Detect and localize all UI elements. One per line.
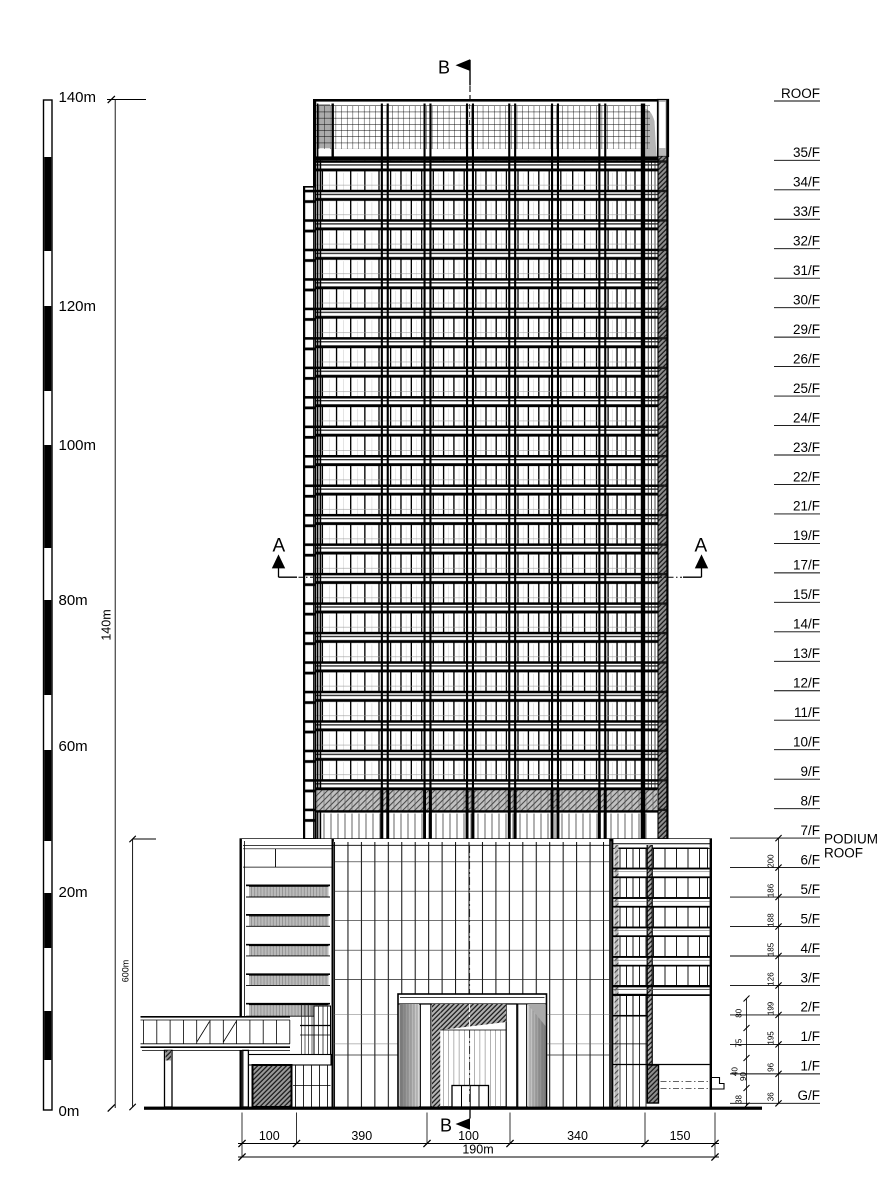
svg-text:150: 150: [670, 1129, 691, 1143]
svg-text:30/F: 30/F: [793, 292, 820, 307]
svg-text:75: 75: [735, 1038, 744, 1047]
svg-text:3/F: 3/F: [800, 970, 820, 985]
svg-text:7/F: 7/F: [800, 823, 820, 838]
svg-text:19/F: 19/F: [793, 528, 820, 543]
svg-text:1/F: 1/F: [800, 1029, 820, 1044]
svg-text:13/F: 13/F: [793, 646, 820, 661]
svg-text:B: B: [440, 1116, 452, 1136]
svg-text:B: B: [438, 58, 450, 78]
svg-text:200: 200: [766, 854, 775, 868]
svg-text:35/F: 35/F: [793, 145, 820, 160]
svg-text:140m: 140m: [59, 89, 97, 106]
svg-text:390: 390: [351, 1129, 372, 1143]
svg-text:186: 186: [767, 883, 776, 897]
svg-text:188: 188: [767, 913, 776, 927]
svg-text:0m: 0m: [59, 1103, 80, 1120]
svg-text:29/F: 29/F: [793, 322, 820, 337]
svg-text:21/F: 21/F: [793, 499, 820, 514]
svg-text:ROOF: ROOF: [781, 86, 820, 101]
svg-text:38: 38: [735, 1095, 744, 1104]
svg-text:126: 126: [766, 972, 775, 986]
svg-text:8/F: 8/F: [800, 793, 820, 808]
svg-text:2/F: 2/F: [800, 1000, 820, 1015]
svg-text:340: 340: [567, 1129, 588, 1143]
svg-text:80: 80: [735, 1008, 744, 1017]
svg-text:100: 100: [458, 1129, 479, 1143]
svg-text:120m: 120m: [59, 298, 97, 315]
svg-text:PODIUM: PODIUM: [824, 832, 878, 847]
svg-text:140m: 140m: [100, 609, 114, 640]
svg-text:A: A: [273, 536, 286, 557]
svg-text:26/F: 26/F: [793, 351, 820, 366]
svg-text:5/F: 5/F: [800, 882, 820, 897]
svg-text:10/F: 10/F: [793, 735, 820, 750]
svg-text:9/F: 9/F: [800, 764, 820, 779]
svg-text:100: 100: [259, 1129, 280, 1143]
svg-text:190m: 190m: [462, 1143, 493, 1157]
svg-text:11/F: 11/F: [794, 705, 820, 720]
svg-text:1/F: 1/F: [800, 1059, 820, 1074]
svg-text:195: 195: [767, 1031, 776, 1045]
svg-text:96: 96: [766, 1062, 775, 1071]
svg-text:20m: 20m: [59, 884, 88, 901]
svg-text:14/F: 14/F: [793, 617, 820, 632]
svg-text:36: 36: [767, 1092, 776, 1101]
svg-text:199: 199: [767, 1001, 776, 1015]
svg-text:A: A: [695, 536, 708, 557]
svg-text:6/F: 6/F: [800, 852, 820, 867]
svg-text:23/F: 23/F: [793, 440, 820, 455]
svg-text:25/F: 25/F: [793, 381, 820, 396]
svg-text:17/F: 17/F: [793, 558, 820, 573]
svg-text:32/F: 32/F: [793, 234, 820, 249]
svg-text:90: 90: [739, 1072, 748, 1081]
svg-text:600m: 600m: [121, 960, 131, 983]
svg-text:12/F: 12/F: [793, 676, 820, 691]
svg-text:5/F: 5/F: [800, 911, 820, 926]
svg-text:31/F: 31/F: [793, 263, 820, 278]
svg-text:34/F: 34/F: [793, 175, 820, 190]
svg-text:24/F: 24/F: [793, 410, 820, 425]
svg-text:22/F: 22/F: [793, 469, 820, 484]
svg-text:60m: 60m: [59, 738, 88, 755]
svg-text:ROOF: ROOF: [824, 846, 863, 861]
svg-text:G/F: G/F: [798, 1088, 821, 1103]
svg-text:33/F: 33/F: [793, 204, 820, 219]
svg-text:80m: 80m: [59, 592, 88, 609]
svg-text:185: 185: [766, 942, 775, 956]
svg-text:100m: 100m: [59, 437, 97, 454]
svg-text:15/F: 15/F: [793, 587, 820, 602]
svg-text:4/F: 4/F: [800, 941, 820, 956]
